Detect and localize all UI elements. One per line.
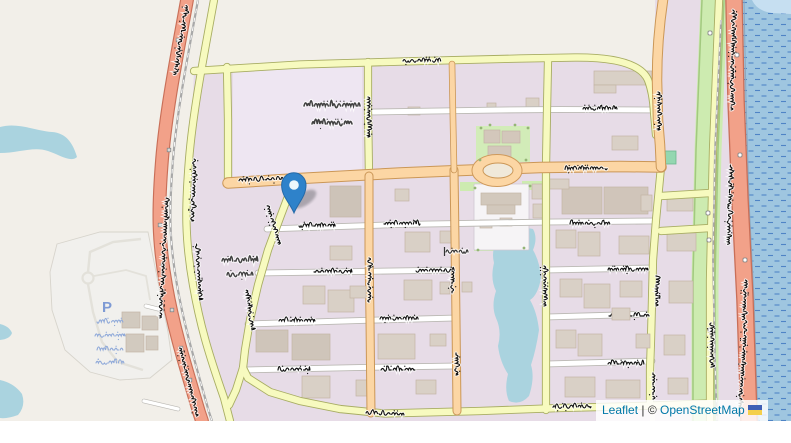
svg-text:P: P [102, 299, 112, 316]
